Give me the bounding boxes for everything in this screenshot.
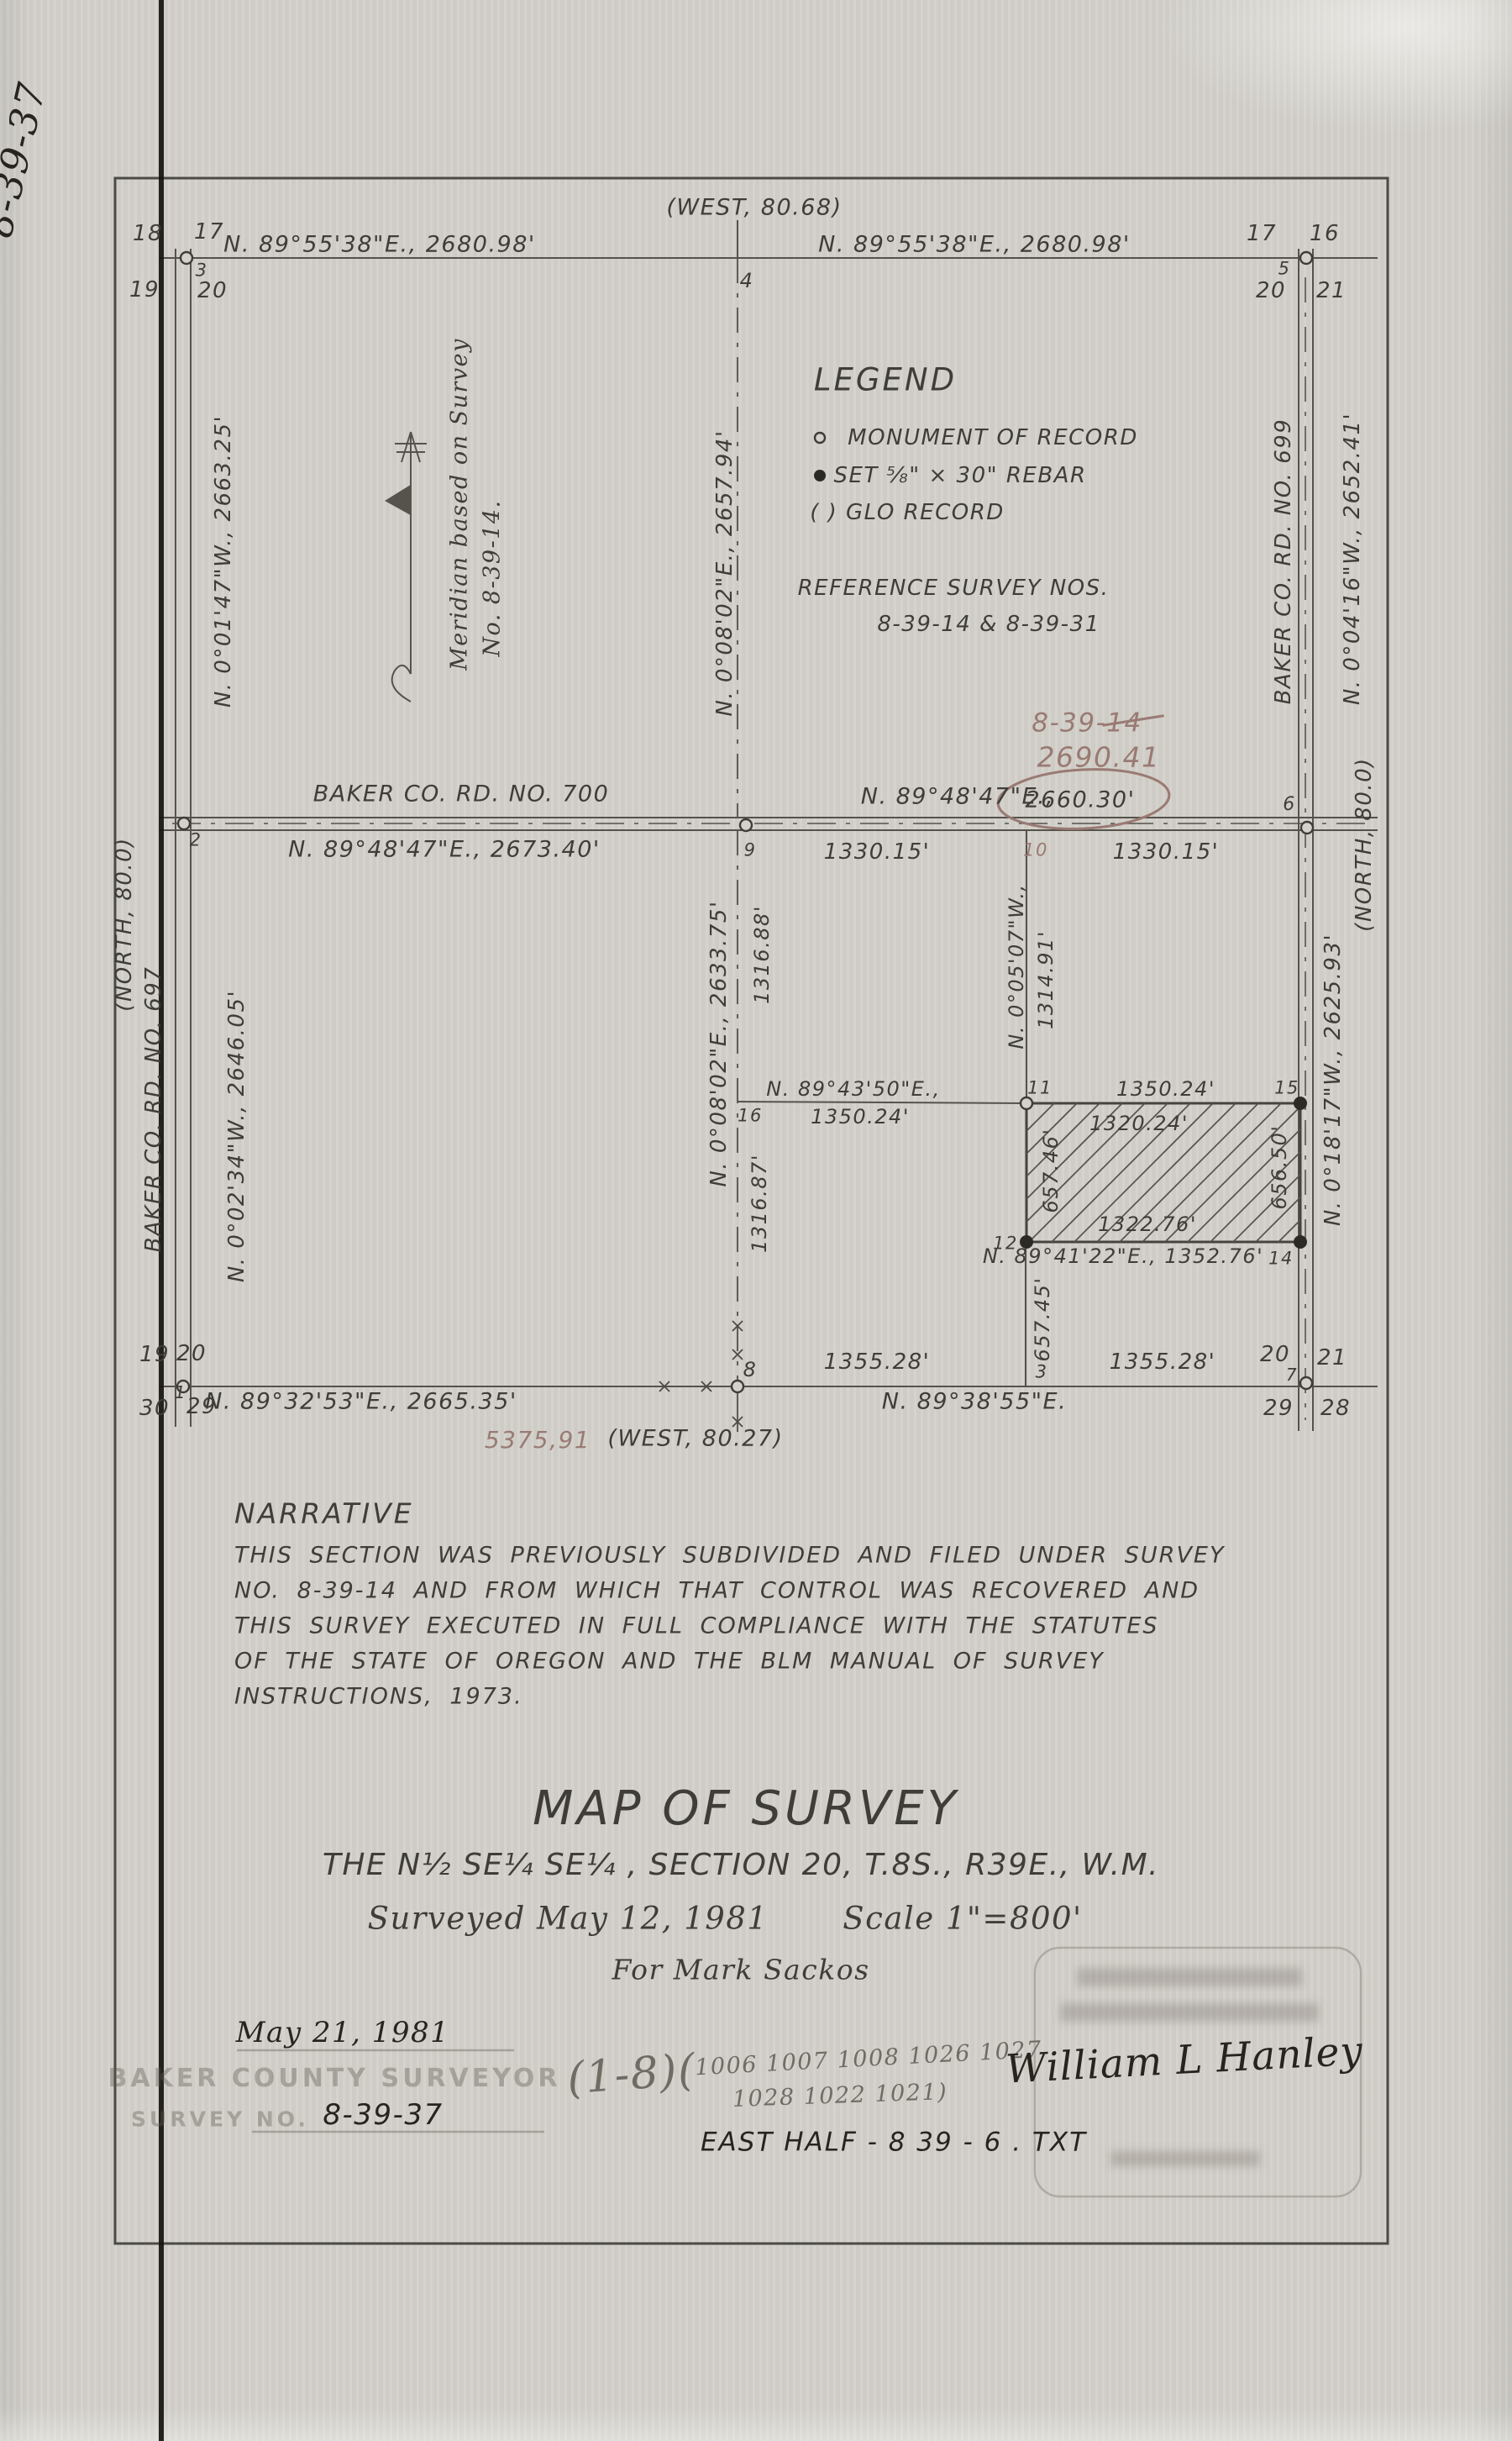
distance-label: 1316.87' xyxy=(749,1154,769,1253)
distance-label: 1316.88' xyxy=(752,905,772,1004)
narrative-line: OF THE STATE OF OREGON AND THE BLM MANUA… xyxy=(234,1650,1105,1673)
section-number: 17 xyxy=(1247,223,1277,245)
map-subtitle: THE N½ SE¼ SE¼ , SECTION 20, T.8S., R39E… xyxy=(323,1850,1159,1881)
point-number: 5 xyxy=(1278,260,1291,278)
distance-label: 1350.24' xyxy=(811,1107,910,1127)
distance-label: 657.46' xyxy=(1041,1128,1061,1213)
narrative-line: THIS SURVEY EXECUTED IN FULL COMPLIANCE … xyxy=(234,1615,1159,1638)
bearing-quarter-line: N. 89°43'50"E., xyxy=(766,1079,940,1099)
road-name-700: BAKER CO. RD. NO. 700 xyxy=(313,783,610,806)
legend-rebar-icon xyxy=(814,470,826,481)
bearing-right-upper: N. 0°04'16"W., 2652.41' xyxy=(1341,413,1363,705)
red-note-distance: 2690.41 xyxy=(1037,744,1161,771)
legend-symbols xyxy=(814,433,826,481)
distance-label: 657.45' xyxy=(1032,1276,1053,1361)
section-number: 19 xyxy=(129,279,160,301)
north-arrow-icon xyxy=(386,432,427,702)
reference-survey-numbers: 8-39-14 & 8-39-31 xyxy=(877,613,1100,635)
bearing-parcel-south: N. 89°41'22"E., 1352.76' xyxy=(983,1246,1263,1266)
glo-north-left: (NORTH, 80.0) xyxy=(113,837,135,1012)
section-number: 20 xyxy=(176,1343,207,1365)
section-number: 29 xyxy=(186,1396,217,1418)
meridian-note-line1: Meridian based on Survey xyxy=(449,338,471,671)
map-scale: Scale 1"=800' xyxy=(843,1903,1082,1934)
road-name-697: BAKER CO. RD. NO. 697 xyxy=(143,966,165,1253)
point-number: 1 xyxy=(175,1384,186,1401)
bearing-top-left: N. 89°55'38"E., 2680.98' xyxy=(223,234,536,256)
distance-label: 1322.76' xyxy=(1098,1214,1197,1234)
bearing-right-lower: N. 0°18'17"W., 2625.93' xyxy=(1322,934,1344,1226)
bearing-parcel-west-line: N. 0°05'07"W., xyxy=(1006,883,1026,1049)
section-number: 20 xyxy=(197,280,228,302)
bearing-left-upper: N. 0°01'47"W., 2663.25' xyxy=(213,415,234,708)
point-number: 14 xyxy=(1268,1250,1294,1268)
glo-distance-top: (WEST, 80.68) xyxy=(666,197,842,219)
section-number: 18 xyxy=(133,223,163,245)
reference-survey-heading: REFERENCE SURVEY NOS. xyxy=(798,577,1110,599)
bearing-left-lower: N. 0°02'34"W., 2646.05' xyxy=(226,990,248,1282)
legend-item-glo: ( ) GLO RECORD xyxy=(810,502,1005,523)
narrative-line: THIS SECTION WAS PREVIOUSLY SUBDIVIDED A… xyxy=(234,1544,1225,1567)
legend-monument-icon xyxy=(815,433,825,443)
point-number: 6 xyxy=(1283,796,1296,814)
legend-title: LEGEND xyxy=(814,365,957,396)
bearing-center-upper: N. 0°08'02"E., 2657.94' xyxy=(714,429,736,716)
distance-label: 1355.28' xyxy=(824,1351,931,1373)
narrative-line: INSTRUCTIONS, 1973. xyxy=(234,1686,523,1708)
distance-label: 1355.28' xyxy=(1110,1351,1216,1373)
narrative-title: NARRATIVE xyxy=(234,1500,414,1528)
point-number: 15 xyxy=(1274,1080,1299,1097)
map-title: MAP OF SURVEY xyxy=(533,1786,959,1833)
stamp-office-name: BAKER COUNTY SURVEYOR xyxy=(108,2066,560,2091)
distance-label: 1320.24' xyxy=(1089,1113,1189,1134)
narrative-line: NO. 8-39-14 AND FROM WHICH THAT CONTROL … xyxy=(234,1580,1200,1602)
point-number: 10 xyxy=(1023,842,1048,860)
surveyed-date: Surveyed May 12, 1981 xyxy=(368,1903,769,1934)
section-number: 16 xyxy=(1310,223,1340,245)
point-number: 3 xyxy=(196,262,208,280)
stamp-survey-no-label: SURVEY NO. xyxy=(131,2109,309,2130)
section-number: 29 xyxy=(1263,1397,1294,1419)
section-number: 20 xyxy=(1256,280,1286,302)
legend-item-rebar: SET ⅝" × 30" REBAR xyxy=(833,465,1086,487)
point-number: 3 xyxy=(1036,1364,1048,1381)
point-number: 11 xyxy=(1027,1080,1053,1097)
witness-tick-marks xyxy=(659,1321,743,1427)
section-number: 20 xyxy=(1260,1344,1290,1365)
point-number: 4 xyxy=(740,271,754,291)
meridian-note-line2: No. 8-39-14. xyxy=(481,499,504,656)
section-number: 28 xyxy=(1320,1397,1351,1419)
glo-north-right: (NORTH, 80.0) xyxy=(1353,757,1375,932)
distance-label: 656.50' xyxy=(1269,1124,1289,1209)
legend-item-monument: MONUMENT OF RECORD xyxy=(848,427,1138,449)
glo-distance-bottom: (WEST, 80.27) xyxy=(607,1428,783,1450)
section-number: 19 xyxy=(139,1344,170,1365)
point-number: 16 xyxy=(738,1107,763,1125)
section-number: 21 xyxy=(1316,280,1347,302)
distance-label: 1330.15' xyxy=(824,841,931,863)
distance-label: 1350.24' xyxy=(1116,1079,1215,1099)
client-name: For Mark Sackos xyxy=(612,1956,869,1984)
bearing-bottom-right: N. 89°38'55"E. xyxy=(882,1391,1067,1413)
red-note-survey-no: 8-39-14 xyxy=(1032,711,1142,737)
point-number: 9 xyxy=(744,842,757,860)
section-number: 17 xyxy=(194,221,224,243)
survey-number: 8-39-37 xyxy=(323,2101,443,2129)
section-number: 21 xyxy=(1317,1347,1347,1369)
filed-date: May 21, 1981 xyxy=(236,2018,450,2047)
pencil-sheet-range: (1-8)( xyxy=(566,2049,698,2102)
distance-label: 1330.15' xyxy=(1113,841,1220,863)
distance-road700-record: 2660.30' xyxy=(1025,789,1135,812)
point-number: 7 xyxy=(1286,1366,1298,1383)
file-note: EAST HALF - 8 39 - 6 . TXT xyxy=(701,2130,1087,2156)
section-number: 30 xyxy=(139,1397,170,1419)
bearing-bottom-left: N. 89°32'53"E., 2665.35' xyxy=(205,1391,517,1413)
bearing-top-right: N. 89°55'38"E., 2680.98' xyxy=(818,234,1131,256)
bearing-road700-measured: N. 89°48'47"E., 2673.40' xyxy=(288,839,601,861)
point-number: 12 xyxy=(993,1235,1018,1253)
red-note-total: 5375,91 xyxy=(485,1428,591,1452)
distance-label: 1314.91' xyxy=(1036,930,1056,1029)
point-number: 2 xyxy=(190,832,202,850)
point-number: 8 xyxy=(743,1360,758,1380)
bearing-center-lower: N. 0°08'02"E., 2633.75' xyxy=(708,900,730,1186)
scanned-survey-page: 8-39-37 (WEST, 80.68) N. 89°55'38"E., 26… xyxy=(0,0,1512,2441)
road-name-699: BAKER CO. RD. NO. 699 xyxy=(1273,418,1294,705)
